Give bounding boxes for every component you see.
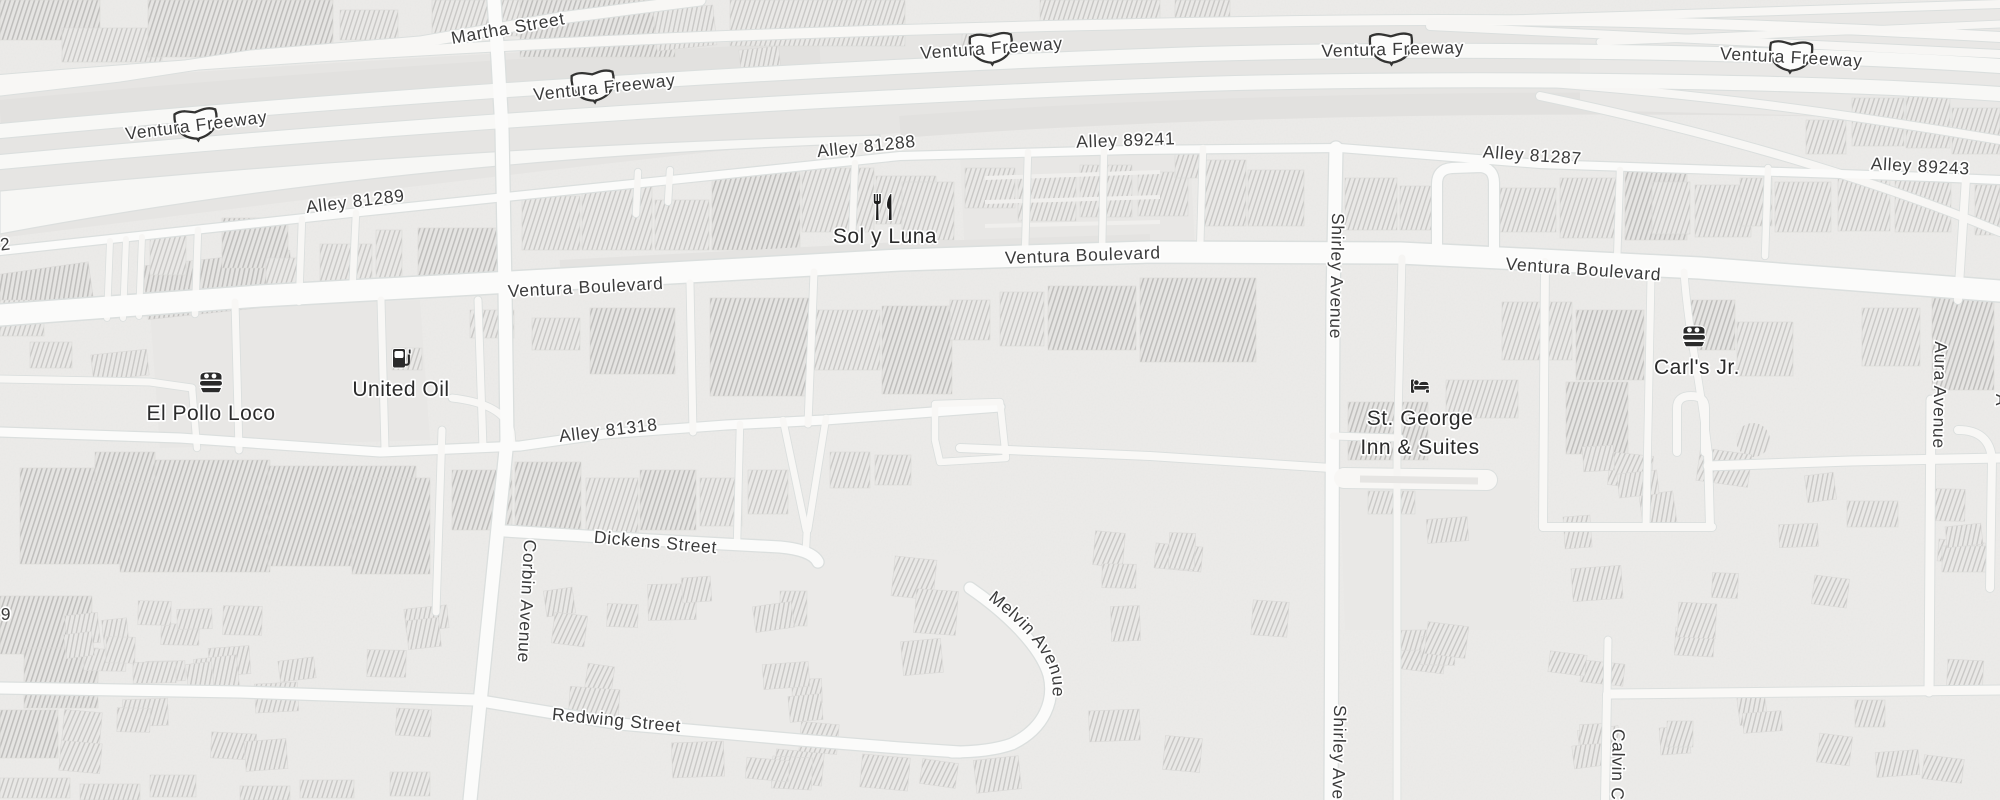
svg-text:United Oil: United Oil: [352, 378, 449, 401]
svg-text:Alley 89241: Alley 89241: [1076, 128, 1176, 151]
svg-text:Shirley Avenue: Shirley Avenue: [1328, 705, 1350, 800]
svg-text:St. George: St. George: [1367, 407, 1474, 430]
svg-text:Inn & Suites: Inn & Suites: [1360, 436, 1479, 459]
svg-text:Sol y Luna: Sol y Luna: [833, 225, 937, 248]
svg-text:El Pollo Loco: El Pollo Loco: [146, 402, 275, 425]
svg-text:9: 9: [1, 604, 11, 624]
svg-text:Aura Avenue: Aura Avenue: [1929, 341, 1951, 449]
svg-text:Shirley Avenue: Shirley Avenue: [1326, 213, 1348, 340]
svg-text:Ventura Freeway: Ventura Freeway: [1321, 37, 1464, 61]
svg-text:A: A: [1992, 394, 2000, 407]
svg-text:Calvin Cou: Calvin Cou: [1607, 729, 1629, 800]
svg-text:Carl's Jr.: Carl's Jr.: [1654, 356, 1740, 379]
